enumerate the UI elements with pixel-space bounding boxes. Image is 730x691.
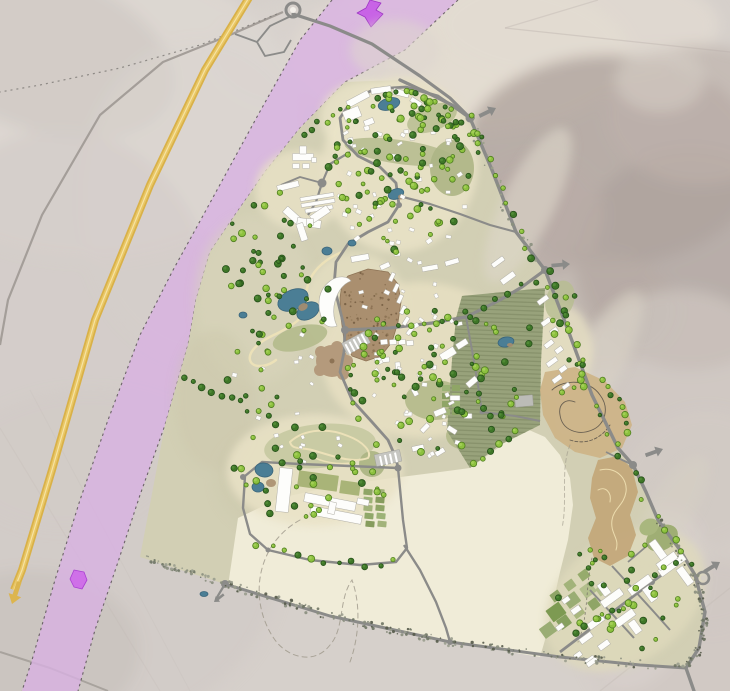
aerial-masterplan-map bbox=[0, 0, 730, 691]
masterplan-map-screenshot bbox=[0, 0, 730, 691]
